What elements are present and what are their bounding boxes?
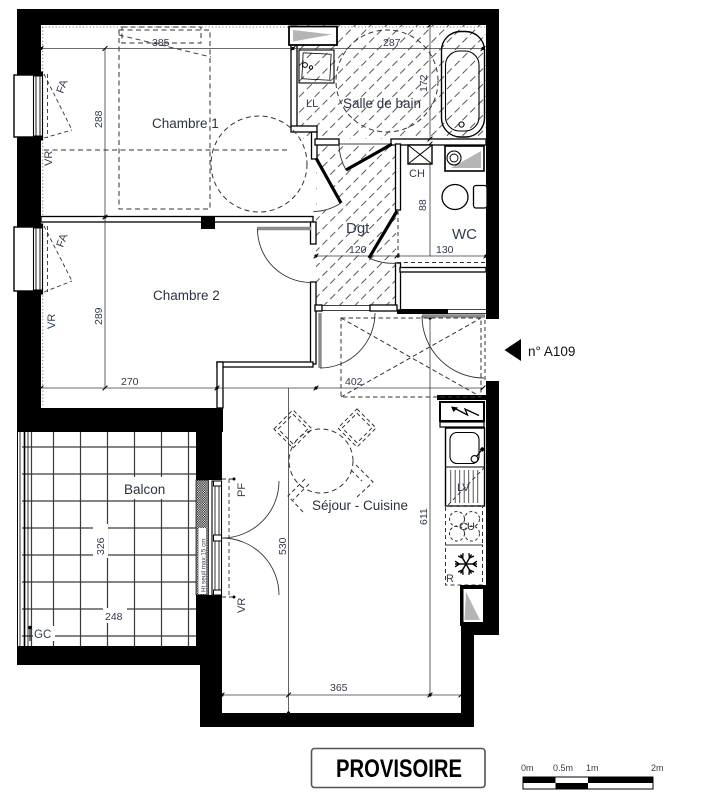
svg-text:Chambre 1: Chambre 1 xyxy=(152,116,219,131)
svg-text:172: 172 xyxy=(418,74,430,92)
svg-text:GC: GC xyxy=(34,629,51,641)
svg-text:288: 288 xyxy=(93,110,105,128)
svg-text:365: 365 xyxy=(330,682,348,694)
svg-text:530: 530 xyxy=(277,537,289,555)
svg-text:130: 130 xyxy=(436,244,454,256)
svg-text:88: 88 xyxy=(417,199,429,211)
svg-text:R: R xyxy=(446,573,454,585)
svg-text:WC: WC xyxy=(452,226,477,243)
svg-text:611: 611 xyxy=(418,508,430,525)
svg-text:CH: CH xyxy=(409,168,425,180)
svg-text:289: 289 xyxy=(93,307,105,325)
svg-text:Salle de bain: Salle de bain xyxy=(343,96,421,111)
svg-text:287: 287 xyxy=(383,37,401,49)
svg-text:n° A109: n° A109 xyxy=(528,344,575,359)
svg-text:0.5m: 0.5m xyxy=(553,763,573,773)
svg-text:2m: 2m xyxy=(651,763,664,773)
svg-text:VR: VR xyxy=(46,314,58,329)
svg-text:VR: VR xyxy=(43,151,55,166)
svg-text:1m: 1m xyxy=(586,763,599,773)
svg-text:Balcon: Balcon xyxy=(124,482,165,497)
svg-text:385: 385 xyxy=(152,37,170,49)
svg-text:326: 326 xyxy=(95,537,107,555)
svg-text:Ht seuil max:15 cm: Ht seuil max:15 cm xyxy=(201,538,208,592)
svg-text:0m: 0m xyxy=(521,763,534,773)
svg-text:Chambre 2: Chambre 2 xyxy=(153,288,220,303)
svg-text:VR: VR xyxy=(236,598,248,613)
svg-text:PF: PF xyxy=(236,483,248,497)
svg-text:402: 402 xyxy=(345,376,363,388)
svg-text:Dgt: Dgt xyxy=(346,220,370,237)
svg-text:120: 120 xyxy=(349,244,367,256)
svg-text:PROVISOIRE: PROVISOIRE xyxy=(336,755,462,783)
svg-text:CU: CU xyxy=(459,521,475,533)
svg-text:248: 248 xyxy=(105,611,123,623)
svg-text:270: 270 xyxy=(121,376,139,388)
svg-text:LV: LV xyxy=(457,482,470,494)
svg-text:Séjour - Cuisine: Séjour - Cuisine xyxy=(312,498,408,513)
svg-text:LL: LL xyxy=(306,98,318,110)
